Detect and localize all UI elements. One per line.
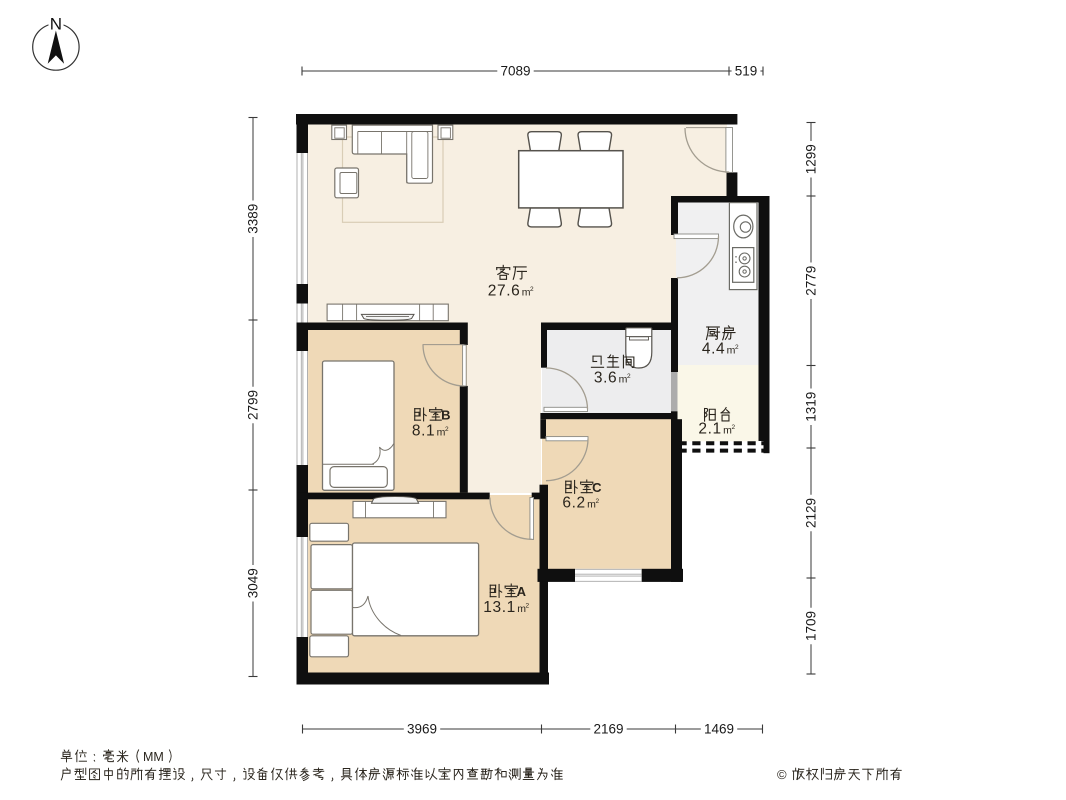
- svg-text:2.1: 2.1: [698, 421, 721, 438]
- svg-text:3389: 3389: [246, 204, 261, 234]
- svg-text:2169: 2169: [593, 722, 623, 737]
- svg-text:2: 2: [735, 344, 739, 351]
- svg-text:©: ©: [777, 767, 787, 782]
- svg-text:2: 2: [595, 498, 599, 505]
- svg-text:6.2: 6.2: [562, 495, 585, 512]
- svg-text:3969: 3969: [407, 722, 437, 737]
- svg-text:1469: 1469: [704, 722, 734, 737]
- svg-text:A: A: [517, 584, 527, 599]
- svg-text:2: 2: [627, 373, 631, 380]
- svg-text:2129: 2129: [804, 498, 819, 528]
- svg-text:C: C: [592, 480, 602, 495]
- svg-text:1319: 1319: [804, 392, 819, 422]
- svg-text:2: 2: [526, 603, 530, 610]
- svg-text:1299: 1299: [804, 144, 819, 174]
- svg-text:2: 2: [530, 286, 534, 293]
- svg-text:1709: 1709: [804, 611, 819, 641]
- svg-text:3049: 3049: [246, 568, 261, 598]
- svg-text:3.6: 3.6: [594, 370, 617, 387]
- svg-text:13.1: 13.1: [483, 599, 516, 616]
- svg-text:B: B: [441, 408, 450, 423]
- svg-text:7089: 7089: [500, 64, 530, 79]
- svg-text:4.4: 4.4: [702, 341, 725, 358]
- svg-text:519: 519: [735, 64, 758, 79]
- svg-text:2: 2: [731, 424, 735, 431]
- svg-text:27.6: 27.6: [488, 283, 521, 300]
- svg-text:2799: 2799: [246, 390, 261, 420]
- svg-text:2779: 2779: [804, 266, 819, 296]
- svg-text:8.1: 8.1: [412, 423, 435, 440]
- svg-text:2: 2: [445, 426, 449, 433]
- svg-text:MM: MM: [143, 750, 164, 764]
